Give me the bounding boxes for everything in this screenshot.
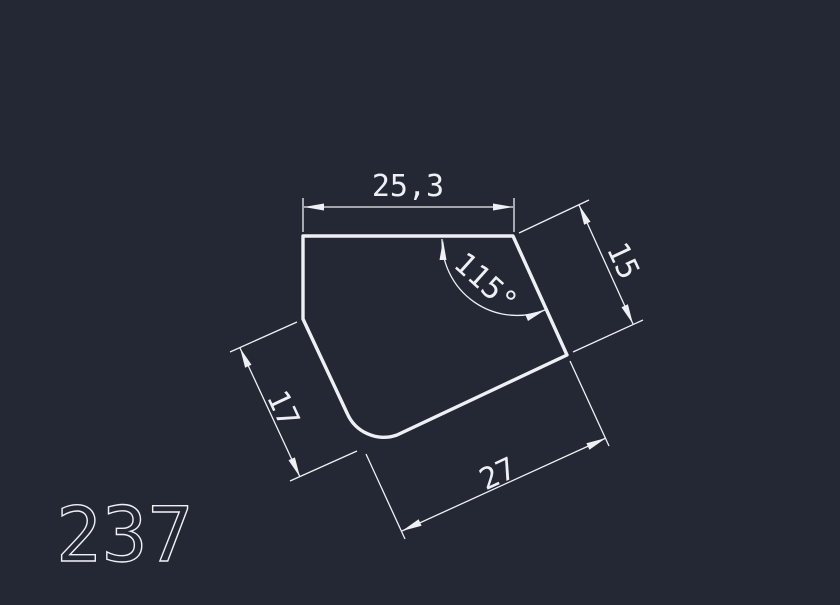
dim-text-right-side: 15 [599, 237, 646, 285]
profile-outline [303, 236, 567, 437]
extension-line [570, 361, 609, 446]
dim-text-top-width: 25,3 [372, 169, 444, 204]
arrowhead-right [586, 438, 606, 450]
part-number: 237 [56, 490, 193, 579]
arrowhead-right [525, 310, 545, 321]
extension-line [230, 322, 297, 352]
arrowhead-top [240, 348, 252, 368]
arrowhead-bottom [622, 304, 634, 324]
cad-viewport[interactable]: 25,3 115° 15 17 [0, 0, 840, 600]
dim-text-left-side: 17 [259, 385, 306, 433]
dim-right-side: 15 [519, 200, 646, 352]
dim-angle: 115° [440, 239, 546, 321]
arrowhead-right [493, 204, 513, 211]
drawing-canvas[interactable]: 25,3 115° 15 17 [0, 0, 840, 600]
arrowhead-up [440, 240, 447, 260]
dim-top-width: 25,3 [303, 169, 514, 232]
dim-bottom-side: 27 [366, 361, 609, 539]
extension-line [366, 454, 405, 539]
arrowhead-top [579, 205, 591, 225]
dim-left-side: 17 [230, 322, 357, 481]
dim-text-bottom-side: 27 [474, 451, 522, 498]
arrowhead-left [304, 204, 324, 211]
arrowhead-bottom [289, 457, 301, 477]
extension-line [573, 320, 643, 352]
extension-line [519, 200, 589, 233]
arrowhead-left [402, 519, 422, 531]
